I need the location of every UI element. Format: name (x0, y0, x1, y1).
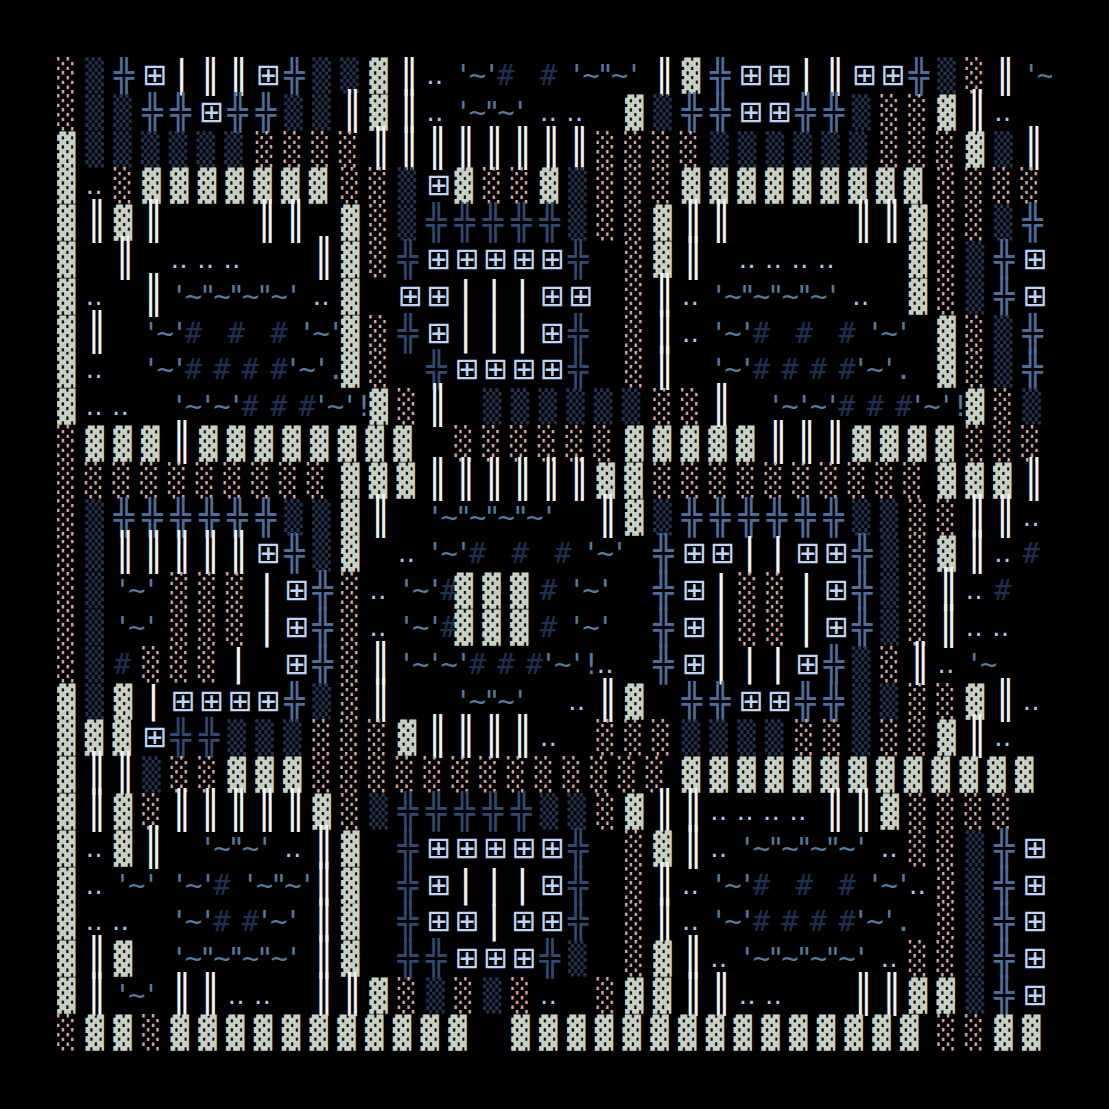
glyph-run-pink-dot-block: ░░░░░░ (455, 425, 625, 462)
glyph-run-pink-dot-block: ░ (625, 241, 653, 278)
glyph-run-pink-dot-block: ░ (937, 278, 965, 315)
glyph-run-mint-block: ▓ (625, 683, 653, 720)
glyph-run-steel-text: '~' (568, 572, 625, 609)
glyph-run-mint-block: ▓ (369, 388, 397, 425)
glyph-run-steel-text: '~' (455, 57, 498, 94)
glyph-run-steel-text: '~'~' (398, 646, 469, 683)
art-row: ▓‥ '~'# # # #'~'.▓░ ╬⊞⊞⊞⊞╬ ░║ '~'# # # #… (57, 351, 1052, 388)
glyph-run-space (597, 278, 625, 315)
glyph-run-navy-dot-block: ▒ (966, 940, 994, 977)
glyph-run-cross-medium: ╬ (313, 609, 341, 646)
glyph-run-dot-pair: ‥ (682, 278, 710, 315)
glyph-run-white-double-bar: ║║ (852, 204, 909, 241)
glyph-run-pink-dot-block: ░ (909, 535, 937, 572)
glyph-run-navy-dot-block: ▒ (313, 683, 341, 720)
glyph-run-dot-pair: ‥ (710, 940, 738, 977)
glyph-run-cross-dark: ╬ (568, 315, 596, 352)
art-row: ▓‥▓║ '~"~' ‥║▓ ╬⊞⊞⊞⊞⊞╬ ░▓║‥'~"~"~"~' ‥░░… (57, 830, 1052, 867)
glyph-run-white-single-bar: | (483, 903, 511, 940)
glyph-run-white-double-bar: ║ (369, 499, 397, 536)
glyph-run-cross-medium: ╬╬ (682, 94, 739, 131)
glyph-run-pink-dot-block: ░░░░░░░░░░ (653, 462, 937, 499)
glyph-run-dot-pair: ‥ (994, 719, 1022, 756)
glyph-run-mint-block: ▓ (57, 756, 85, 793)
glyph-run-steel-text: '~"~' (455, 683, 540, 720)
glyph-run-steel-text: '~"~"~"~' (426, 499, 568, 536)
glyph-run-white-double-bar: ║ (994, 683, 1022, 720)
glyph-run-mint-block: ▓ (653, 940, 681, 977)
glyph-run-mint-block: ▓ (909, 241, 937, 278)
glyph-run-pink-dot-block: ░░░ (171, 572, 256, 609)
glyph-run-space (994, 646, 1022, 683)
glyph-run-cross-dark: ╬ (568, 241, 596, 278)
glyph-run-space (909, 351, 937, 388)
glyph-run-dot-pair: ‥ (682, 903, 710, 940)
glyph-run-mint-block: ▓ (341, 830, 369, 867)
glyph-run-white-single-bar: ||| (710, 646, 795, 683)
glyph-run-dot-pair: ‥ (880, 940, 908, 977)
glyph-run-cross-dark: ╬╬ (398, 940, 455, 977)
glyph-run-cross-medium: ╬ (994, 241, 1022, 278)
glyph-run-cross-medium: ╬ (909, 57, 937, 94)
glyph-run-steel-text: '~ (966, 646, 994, 683)
glyph-run-space (653, 683, 681, 720)
glyph-run-cross-dark: ╬ (426, 351, 454, 388)
glyph-run-hash-navy: # (440, 609, 454, 646)
glyph-run-space (909, 903, 937, 940)
glyph-run-pink-dot-block: ░ (57, 499, 85, 536)
glyph-run-space (1022, 793, 1050, 830)
glyph-run-mint-block: ▓ (398, 719, 426, 756)
glyph-run-mint-block: ▓ (57, 315, 85, 352)
glyph-run-mint-block: ▓ (341, 204, 369, 241)
glyph-run-cross-dark: ╬ (568, 830, 596, 867)
glyph-run-dot-pair: ‥ (1022, 683, 1050, 720)
glyph-run-mint-block: ▓▓ (625, 977, 682, 1014)
glyph-run-cross-dark: ╬ (398, 315, 426, 352)
glyph-run-mint-block: ▓ (455, 167, 483, 204)
glyph-run-cross-medium: ╬ (1022, 204, 1050, 241)
glyph-run-space (85, 241, 113, 278)
glyph-run-steel-text: '~'. (852, 903, 909, 940)
glyph-run-mint-block: ▓ (114, 204, 142, 241)
glyph-run-pink-dot-block: ░░ (880, 94, 937, 131)
glyph-run-window-box-glyph: ⊞ (1022, 278, 1050, 315)
art-row: ▓║▓░║║║║║▓░▒╬╬╬╬╬▒▒░▓║║‥‥‥‥║║▓░░░░ (57, 793, 1052, 830)
glyph-run-mint-block: ▓ (369, 94, 397, 131)
glyph-run-pink-dot-block: ░░░░ (256, 131, 370, 168)
glyph-run-steel-text: '~' (114, 609, 171, 646)
glyph-run-mint-block: ▓ (653, 830, 681, 867)
glyph-run-cross-medium: ╬ (852, 572, 880, 609)
glyph-run-dot-pair: ‥ (85, 867, 113, 904)
glyph-run-window-box-glyph: ⊞⊞ (795, 535, 852, 572)
glyph-run-white-double-bar: ║ (313, 241, 341, 278)
glyph-run-hash-navy: # (213, 867, 241, 904)
glyph-run-pink-dot-block: ░ (57, 535, 85, 572)
glyph-run-hash-navy: # (540, 572, 568, 609)
glyph-run-pink-dot-block: ░░ (909, 940, 966, 977)
glyph-run-white-double-bar: ║ (85, 204, 113, 241)
glyph-run-white-double-bar: ║ (369, 683, 397, 720)
glyph-run-pink-dot-block: ░ (966, 351, 994, 388)
glyph-run-cross-dark: ╬ (398, 830, 426, 867)
glyph-run-mint-block: ▓ (114, 793, 142, 830)
glyph-run-mint-block: ▓ (57, 977, 85, 1014)
glyph-run-pink-dot-block: ░ (937, 903, 965, 940)
glyph-run-dot-pair: ‥ (426, 94, 454, 131)
glyph-run-white-double-bar: ║║║║║ (171, 793, 313, 830)
glyph-run-cross-dark: ╬ (568, 867, 596, 904)
glyph-run-navy-dot-block: ▒▒ (85, 94, 142, 131)
glyph-run-white-double-bar: ║ (966, 94, 994, 131)
glyph-run-navy-dot-block: ▒ (85, 609, 113, 646)
art-row: ▓‥░▓▓▓▓▓▓▓░░▒⊞▓░░▓▒░░░▓▓▓▓▓▓▓▓▓░░░░ (57, 167, 1052, 204)
glyph-run-white-double-bar: ║║║║ (426, 719, 540, 756)
glyph-run-window-box-glyph: ⊞⊞⊞⊞ (455, 351, 569, 388)
glyph-run-pink-dot-block: ░░ (909, 499, 966, 536)
glyph-run-mint-block: ▓ (937, 351, 965, 388)
glyph-run-mint-block: ▓ (57, 278, 85, 315)
glyph-run-dot-pair: ‥‥ (540, 94, 597, 131)
glyph-run-hash-navy: # # (497, 57, 568, 94)
glyph-run-space (682, 351, 710, 388)
glyph-run-mint-block: ▓ (114, 683, 142, 720)
glyph-run-hash-navy: # # # (838, 388, 909, 425)
glyph-run-pink-dot-block: ░░░░ (937, 167, 1051, 204)
glyph-run-mint-block: ▓ (57, 683, 85, 720)
glyph-run-mint-block: ▓ (937, 315, 965, 352)
glyph-run-white-double-bar: ║║ (852, 977, 909, 1014)
glyph-run-hash-navy: # # # (753, 315, 867, 352)
glyph-run-navy-dot-block: ▒ (966, 867, 994, 904)
art-row: ░▒║║║║║⊞╬▒▓ ‥'~'# # # '~' ╬⊞⊞||⊞⊞╬▒░▓║‥# (57, 535, 1052, 572)
glyph-run-white-double-bar: ║ (142, 204, 170, 241)
glyph-run-window-box-glyph: ⊞ (199, 94, 227, 131)
glyph-run-hash-navy: # (114, 646, 142, 683)
glyph-run-dot-pair: ‥ (540, 719, 568, 756)
glyph-run-cross-medium: ╬ (653, 646, 681, 683)
glyph-run-white-double-bar: ║ (653, 315, 681, 352)
glyph-run-mint-block: ▓ (341, 499, 369, 536)
glyph-run-dot-pair: ‥ (710, 830, 738, 867)
glyph-run-steel-text: '~"~' (199, 830, 284, 867)
glyph-run-hash-navy: # # # # (753, 351, 852, 388)
glyph-run-mint-block: ▓▓▓▓▓▓▓▓▓ (682, 167, 938, 204)
glyph-run-cross-medium: ╬╬ (142, 94, 199, 131)
glyph-run-navy-dot-block: ▒▒▒▒▒▒ (483, 388, 653, 425)
glyph-run-steel-text: '~' (568, 609, 625, 646)
glyph-run-window-box-glyph: ⊞ (1022, 940, 1050, 977)
glyph-run-window-box-glyph: ⊞ (682, 572, 710, 609)
glyph-run-pink-dot-block: ░ (114, 167, 142, 204)
glyph-run-white-single-bar: ||| (455, 867, 540, 904)
glyph-run-mint-block: ▓▓▓ (227, 756, 312, 793)
glyph-run-white-double-bar: ║ (682, 830, 710, 867)
glyph-run-space (313, 204, 341, 241)
glyph-run-hash-navy: # # # (242, 388, 313, 425)
glyph-run-steel-text: '~' (256, 903, 313, 940)
glyph-run-navy-dot-block: ▒ (85, 57, 113, 94)
glyph-run-window-box-glyph: ⊞ (284, 609, 312, 646)
glyph-run-navy-dot-block: ▒ (85, 499, 113, 536)
glyph-run-space (597, 241, 625, 278)
glyph-run-steel-text: '~' (710, 315, 753, 352)
glyph-run-navy-dot-block: ▒ (852, 94, 880, 131)
glyph-run-white-double-bar: ║ (341, 94, 369, 131)
glyph-run-mint-block: ▓ (966, 683, 994, 720)
glyph-run-dot-pair: ‥ (966, 572, 994, 609)
glyph-run-hash-navy: # # # (185, 315, 299, 352)
glyph-run-pink-dot-block: ░░ (341, 167, 398, 204)
glyph-run-pink-dot-block: ░ (597, 793, 625, 830)
glyph-run-window-box-glyph: ⊞⊞ (426, 903, 483, 940)
glyph-run-white-double-bar: ║║ (682, 204, 739, 241)
glyph-run-mint-block: ▓ (341, 241, 369, 278)
glyph-run-mint-block: ▓▓▓ (455, 572, 540, 609)
glyph-run-white-single-bar: || (738, 535, 795, 572)
glyph-run-cross-medium: ╬ (1022, 315, 1050, 352)
screenshot-frame: ░▒╬⊞|║║⊞╬▒▒▓║‥'~'# # '~"~' ║▓╬⊞⊞|║⊞⊞╬▒░║… (0, 0, 1109, 1109)
glyph-run-space (568, 499, 596, 536)
glyph-run-white-double-bar: ║ (653, 867, 681, 904)
glyph-run-pink-dot-block: ░ (341, 609, 369, 646)
glyph-run-space (256, 241, 313, 278)
glyph-run-mint-block: ▓▓▓ (455, 609, 540, 646)
glyph-run-mint-block: ▓ (313, 793, 341, 830)
glyph-run-space (114, 351, 142, 388)
glyph-run-white-double-bar: ║ (85, 977, 113, 1014)
glyph-run-cross-medium: ╬ (710, 57, 738, 94)
glyph-run-steel-text: '~"~"~"~' (171, 940, 313, 977)
glyph-run-white-double-bar: ║ (313, 903, 341, 940)
glyph-run-navy-dot-block: ▒ (994, 315, 1022, 352)
glyph-run-pink-dot-block: ░░ (909, 830, 966, 867)
glyph-run-white-double-bar: ║║║║║ (114, 535, 256, 572)
glyph-run-mint-block: ▓▓▓▓▓▓▓▓▓▓▓▓▓ (682, 756, 1051, 793)
glyph-run-cross-medium: ╬ (994, 977, 1022, 1014)
glyph-run-navy-dot-block: ▒▒▒▒ (682, 719, 796, 756)
glyph-run-steel-text: '~'. (852, 351, 909, 388)
glyph-run-white-double-bar: ║║║ (767, 425, 852, 462)
glyph-run-dot-pair: ‥ (880, 830, 908, 867)
glyph-run-mint-block: ▓ (57, 241, 85, 278)
art-row: ░▒▒╬╬⊞╬╬▒▒║▓║‥'~"~' ‥‥ ▓▒╬╬⊞⊞╬╬▒░░▓║‥ (57, 94, 1052, 131)
glyph-run-white-double-bar: ║ (142, 830, 170, 867)
glyph-run-navy-dot-block: ▒ (966, 903, 994, 940)
glyph-run-cross-medium: ╬╬ (227, 94, 284, 131)
glyph-run-steel-text: '~' (171, 903, 214, 940)
glyph-run-mint-block: ▓ (540, 167, 568, 204)
glyph-run-window-box-glyph: ⊞ (1022, 241, 1050, 278)
glyph-run-pink-dot-block: ░ (625, 315, 653, 352)
glyph-run-steel-text: '~'. (284, 351, 341, 388)
glyph-run-dot-pair: ‥‥‥ (171, 241, 256, 278)
glyph-run-dot-pair: ‥‥ (85, 903, 142, 940)
glyph-run-white-single-bar: | (171, 57, 199, 94)
glyph-run-mint-block: ▓ (369, 977, 397, 1014)
glyph-run-navy-dot-block: ▒ (85, 572, 113, 609)
glyph-run-mint-block: ▓ (625, 94, 653, 131)
glyph-run-cross-medium: ╬ (852, 535, 880, 572)
glyph-run-space (880, 278, 908, 315)
glyph-run-mint-block: ▓ (625, 499, 653, 536)
glyph-run-dot-pair: ‥ (85, 830, 113, 867)
art-row: ▓║▓║ ║║ ▓░▒╬╬╬╬╬▒░░▓║║ ║║▓░░▒╬ (57, 204, 1052, 241)
glyph-run-pink-dot-block: ░ (142, 793, 170, 830)
glyph-run-space (596, 830, 624, 867)
glyph-run-window-box-glyph: ⊞ (426, 867, 454, 904)
art-row: ▓‥'~' '~'# '~"~'║▓ ╬⊞|||⊞╬ ░║‥'~'# # # '… (57, 867, 1052, 904)
glyph-run-space (483, 1014, 511, 1051)
glyph-run-space (114, 315, 142, 352)
glyph-run-pink-dot-block: ░ (57, 609, 85, 646)
glyph-run-cross-dark: ╬ (568, 903, 596, 940)
glyph-run-steel-text: '~"~' (455, 94, 540, 131)
glyph-run-mint-block: ▓▓▓▓▓ (625, 425, 767, 462)
glyph-run-white-double-bar: ║ (313, 867, 341, 904)
glyph-run-cross-medium: ╬╬ (682, 683, 739, 720)
glyph-run-hash-navy: # # (213, 903, 256, 940)
glyph-run-pink-dot-block: ░░ (937, 1014, 994, 1051)
glyph-run-mint-block: ▓ (625, 793, 653, 830)
glyph-run-pink-dot-block: ░ (341, 683, 369, 720)
glyph-run-pink-dot-block: ░ (341, 646, 369, 683)
glyph-run-space (738, 204, 852, 241)
glyph-run-window-box-glyph: ⊞ (142, 57, 170, 94)
glyph-run-mint-block: ▓▓ (994, 1014, 1051, 1051)
art-row: ▓‥ ║'~"~"~"~' ‥▓ ⊞⊞|||⊞⊞ ░║‥'~"~"~"~' ‥ … (57, 278, 1052, 315)
glyph-run-white-single-bar: | (795, 57, 823, 94)
glyph-run-white-single-bar: ||| (455, 315, 540, 352)
glyph-run-white-double-bar: ║ (171, 425, 199, 462)
glyph-run-hash-navy: # (1022, 535, 1050, 572)
glyph-run-mint-block: ▓ (881, 793, 909, 830)
art-row: ▓▒▓|⊞⊞⊞⊞╬▒░║ '~"~' ‥║▓ ╬╬⊞⊞╬╬▒▒░░▓║‥ (57, 683, 1052, 720)
art-row: ░▓▓░▓▓▓▓▓▓▓▓▓▓▓ ▓▓▓▓▓▓▓▓▓▓▓▓▓▓▓░░▓▓ (57, 1014, 1052, 1051)
glyph-run-navy-dot-block: ▒ (568, 167, 596, 204)
glyph-run-navy-dot-block: ▒▒▒ (227, 719, 312, 756)
glyph-run-cross-medium: ╬╬╬╬╬╬ (682, 499, 852, 536)
glyph-run-navy-dot-block: ▒ (966, 241, 994, 278)
glyph-run-cross-medium: ╬ (114, 57, 142, 94)
glyph-run-pink-dot-block: ░░░ (142, 646, 227, 683)
glyph-run-pink-dot-block: ░ (937, 867, 965, 904)
glyph-run-pink-dot-block: ░░ (483, 167, 540, 204)
glyph-run-white-double-bar: ║║ (313, 977, 370, 1014)
glyph-run-dot-pair: ‥ (85, 278, 113, 315)
glyph-run-pink-dot-block: ░░ (880, 719, 937, 756)
glyph-run-window-box-glyph: ⊞ (256, 57, 284, 94)
glyph-run-cross-dark: ╬ (398, 241, 426, 278)
glyph-run-cross-medium: ╬ (824, 646, 852, 683)
glyph-run-white-single-bar: | (710, 572, 738, 609)
glyph-run-navy-dot-block: ▒ (142, 756, 170, 793)
glyph-run-steel-text: '~' (710, 351, 753, 388)
glyph-run-cross-medium: ╬ (994, 867, 1022, 904)
glyph-run-cross-dark: ╬╬╬╬╬ (398, 793, 540, 830)
glyph-run-space (114, 278, 142, 315)
glyph-run-white-double-bar: ║ (85, 315, 113, 352)
glyph-run-cross-dark: ╬ (398, 903, 426, 940)
textmode-art-canvas: ░▒╬⊞|║║⊞╬▒▒▓║‥'~'# # '~"~' ║▓╬⊞⊞|║⊞⊞╬▒░║… (57, 57, 1052, 1052)
glyph-run-navy-dot-block: ▒ (85, 535, 113, 572)
glyph-run-cross-dark: ╬ (540, 940, 568, 977)
glyph-run-navy-dot-block: ▒▒ (284, 499, 341, 536)
glyph-run-cross-medium: ╬ (1022, 351, 1050, 388)
glyph-run-white-double-bar: ║ (114, 241, 142, 278)
glyph-run-cross-medium: ╬ (994, 830, 1022, 867)
glyph-run-white-double-bar: ║║║║║║║║ (369, 131, 596, 168)
glyph-run-space (625, 609, 653, 646)
glyph-run-white-double-bar: ║ (653, 278, 681, 315)
glyph-run-navy-dot-block: ▒▒ (852, 683, 909, 720)
glyph-run-space (852, 241, 909, 278)
glyph-run-mint-block: ▓▓ (85, 1014, 142, 1051)
glyph-run-navy-dot-block: ▒ (880, 572, 908, 609)
glyph-run-steel-text: '~"~"~"~' (171, 278, 313, 315)
glyph-run-pink-dot-block: ░░░ (881, 131, 966, 168)
glyph-run-pink-dot-block: ░░░░░░░░░░░░░ (313, 756, 682, 793)
glyph-run-space (625, 646, 653, 683)
glyph-run-pink-dot-block: ░ (625, 940, 653, 977)
glyph-run-space (398, 499, 426, 536)
glyph-run-window-box-glyph: ⊞⊞ (852, 57, 909, 94)
glyph-run-space (596, 315, 624, 352)
glyph-run-cross-medium: ╬ (653, 572, 681, 609)
glyph-run-hash-navy: # # # (469, 646, 540, 683)
glyph-run-pink-dot-block: ░ (625, 278, 653, 315)
glyph-run-white-double-bar: ║ (313, 940, 341, 977)
glyph-run-space (597, 94, 625, 131)
glyph-run-dot-pair: ‥ (994, 535, 1022, 572)
glyph-run-pink-dot-block: ░░ (738, 572, 795, 609)
glyph-run-pink-dot-block: ░ (369, 204, 397, 241)
glyph-run-steel-text: '~' (866, 867, 909, 904)
glyph-run-window-box-glyph: ⊞ (540, 315, 568, 352)
glyph-run-dot-pair: ‥ (85, 351, 113, 388)
glyph-run-space (1022, 719, 1050, 756)
art-row: ░▒# ░░░| ⊞╬░║'~'~'# # #'~'!‥ ╬⊞|||⊞╬▒░║‥… (57, 646, 1052, 683)
glyph-run-mint-block: ▓ (57, 167, 85, 204)
glyph-run-window-box-glyph: ⊞⊞ (738, 683, 795, 720)
glyph-run-steel-text: '~' (710, 867, 753, 904)
glyph-run-mint-block: ▓ (966, 131, 994, 168)
glyph-run-pink-dot-block: ░ (398, 977, 426, 1014)
glyph-run-steel-text: '~'! (540, 646, 597, 683)
glyph-run-mint-block: ▓▓▓▓▓▓▓ (142, 167, 341, 204)
glyph-run-pink-dot-block: ░ (369, 351, 397, 388)
glyph-run-space (256, 646, 284, 683)
glyph-run-dot-pair: ‥ (682, 315, 710, 352)
glyph-run-pink-dot-block: ░░░ (313, 719, 398, 756)
glyph-run-white-double-bar: ║ (994, 57, 1022, 94)
glyph-run-navy-dot-block: ▒▒ (852, 499, 909, 536)
glyph-run-white-double-bar: ║ (653, 351, 681, 388)
glyph-run-window-box-glyph: ⊞ (1022, 977, 1050, 1014)
art-row: ▓ ║ ‥‥‥ ║▓░╬⊞⊞⊞⊞⊞╬ ░▓║ ‥‥‥‥ ▓░▒╬⊞ (57, 241, 1052, 278)
glyph-run-hash-navy: # # # (753, 867, 867, 904)
glyph-run-white-double-bar: ║ (369, 646, 397, 683)
glyph-run-space (369, 903, 397, 940)
glyph-run-navy-dot-block: ▒▒ (313, 57, 370, 94)
glyph-run-mint-block: ▓ (966, 388, 994, 425)
glyph-run-window-box-glyph: ⊞⊞ (398, 278, 455, 315)
glyph-run-pink-dot-block: ░ (625, 351, 653, 388)
glyph-run-cross-medium: ╬ (653, 609, 681, 646)
glyph-run-window-box-glyph: ⊞ (1051, 315, 1052, 352)
glyph-run-window-box-glyph: ⊞⊞⊞⊞⊞ (426, 830, 568, 867)
